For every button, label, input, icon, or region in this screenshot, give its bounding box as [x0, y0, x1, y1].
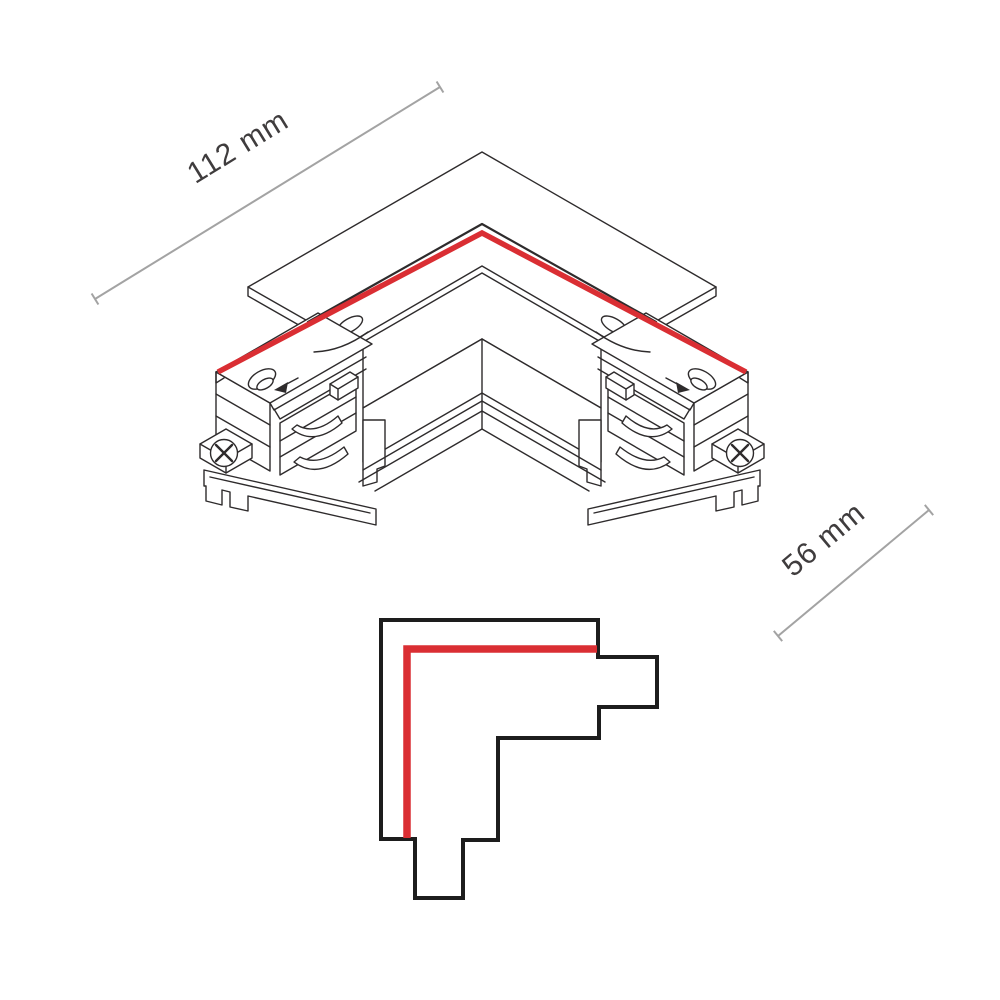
drawing-canvas: 112 mm 56 mm — [0, 0, 1000, 1000]
profile-schematic — [381, 620, 657, 898]
right-connector-block — [588, 313, 764, 525]
dimension-tick-112-end — [437, 82, 444, 93]
dimension-label-112: 112 mm — [182, 103, 295, 190]
housing-foot-right — [579, 420, 601, 486]
isometric-connector-drawing — [200, 152, 764, 525]
profile-outline — [381, 620, 657, 898]
housing-foot-left — [363, 420, 385, 486]
housing-base-step-3 — [375, 429, 589, 491]
dimension-tick-112-start — [92, 294, 99, 305]
left-connector-block — [200, 313, 376, 525]
technical-drawing-page: 112 mm 56 mm — [0, 0, 1000, 1000]
